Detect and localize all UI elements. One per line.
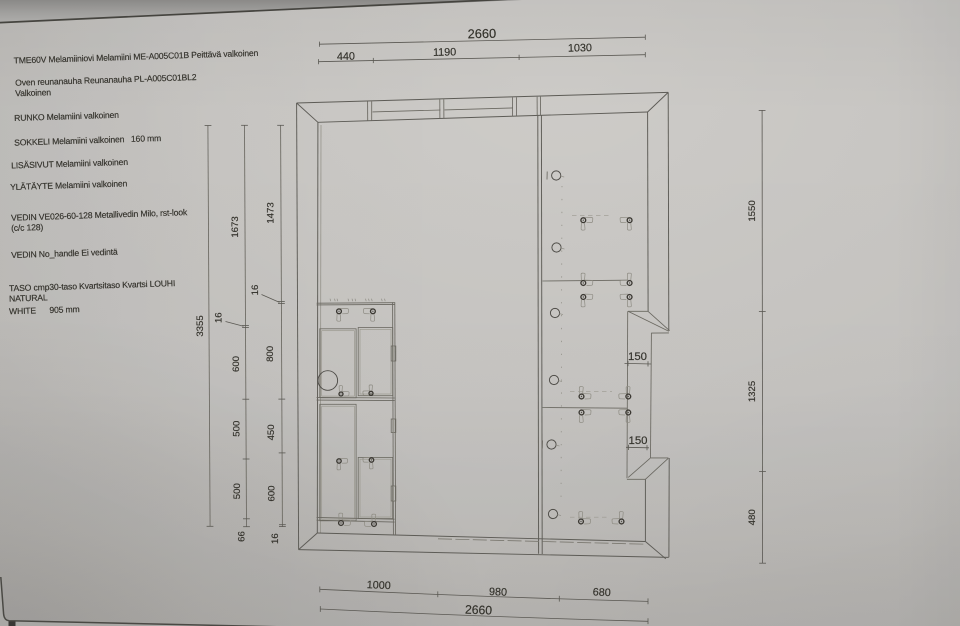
- svg-text:16: 16: [214, 312, 225, 323]
- svg-text:(c/c 128): (c/c 128): [11, 222, 44, 233]
- svg-text:150: 150: [628, 435, 647, 447]
- svg-text:66: 66: [237, 531, 248, 542]
- svg-text:1473: 1473: [265, 202, 276, 223]
- svg-text:980: 980: [489, 586, 507, 599]
- svg-text:600: 600: [231, 356, 242, 372]
- svg-text:450: 450: [266, 424, 277, 440]
- svg-text:500: 500: [231, 421, 242, 437]
- svg-text:600: 600: [266, 485, 277, 501]
- svg-text:480: 480: [747, 509, 758, 525]
- svg-text:1030: 1030: [568, 42, 592, 55]
- svg-text:2660: 2660: [467, 26, 496, 42]
- svg-text:2660: 2660: [465, 602, 493, 617]
- svg-text:440: 440: [337, 51, 355, 63]
- svg-text:NATURAL: NATURAL: [9, 292, 48, 303]
- svg-text:1673: 1673: [230, 216, 241, 237]
- svg-text:Valkoinen: Valkoinen: [15, 87, 51, 98]
- svg-text:1325: 1325: [747, 381, 758, 402]
- svg-text:680: 680: [592, 586, 610, 599]
- svg-text:1190: 1190: [433, 46, 456, 59]
- svg-text:150: 150: [628, 351, 647, 363]
- svg-text:800: 800: [265, 346, 276, 362]
- svg-text:1000: 1000: [367, 579, 391, 592]
- svg-text:3355: 3355: [195, 315, 206, 336]
- svg-text:1550: 1550: [747, 200, 758, 221]
- svg-text:16: 16: [250, 285, 261, 296]
- svg-text:500: 500: [232, 483, 243, 499]
- svg-text:16: 16: [270, 533, 281, 544]
